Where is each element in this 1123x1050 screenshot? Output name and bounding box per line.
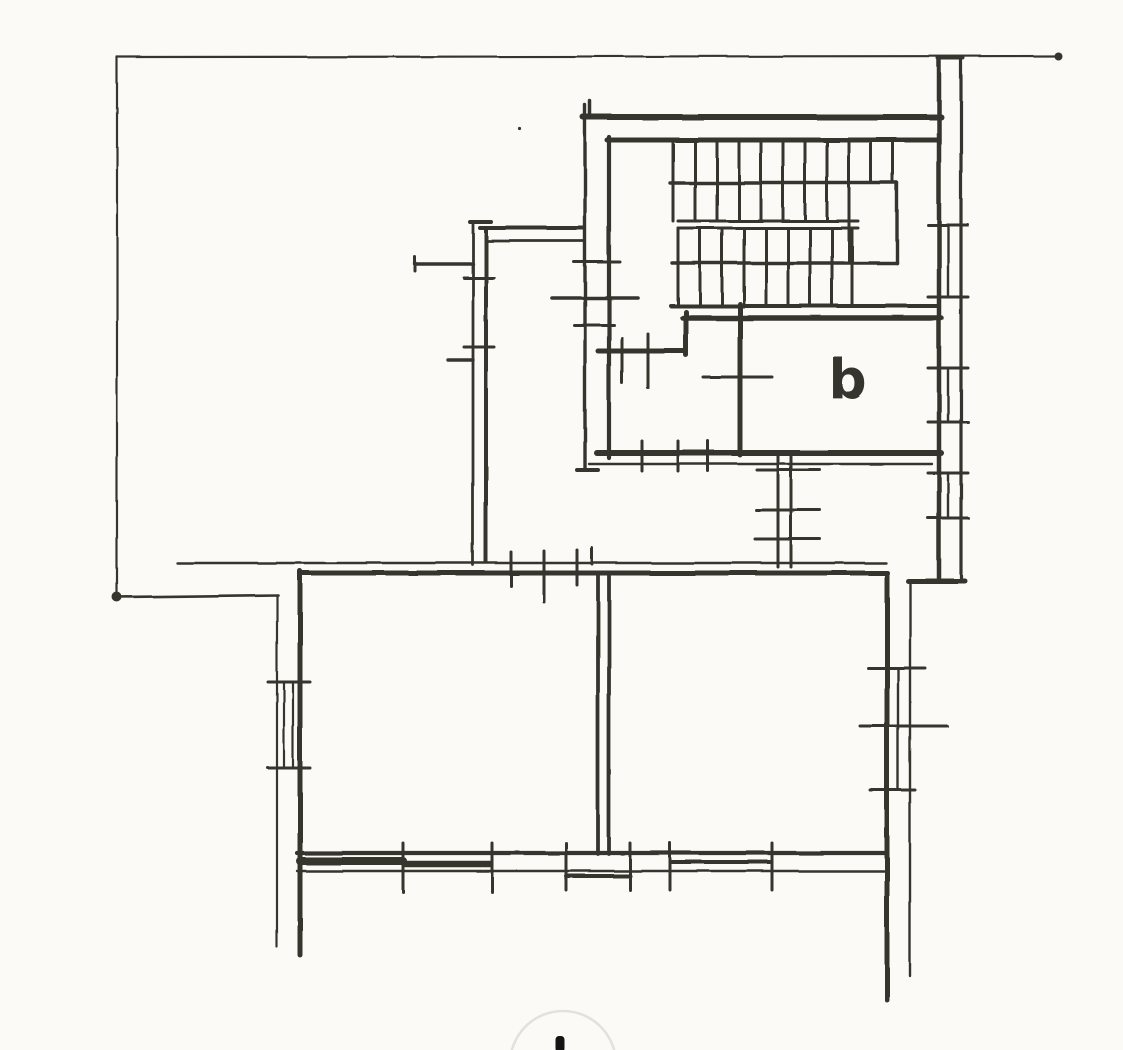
room-b-label: b bbox=[828, 348, 867, 411]
floor-plan-canvas: b bbox=[0, 0, 1123, 1050]
scanned-floor-plan: b bbox=[0, 0, 1123, 1050]
badge-glyph bbox=[556, 1036, 565, 1050]
paper-background bbox=[0, 0, 1123, 1050]
